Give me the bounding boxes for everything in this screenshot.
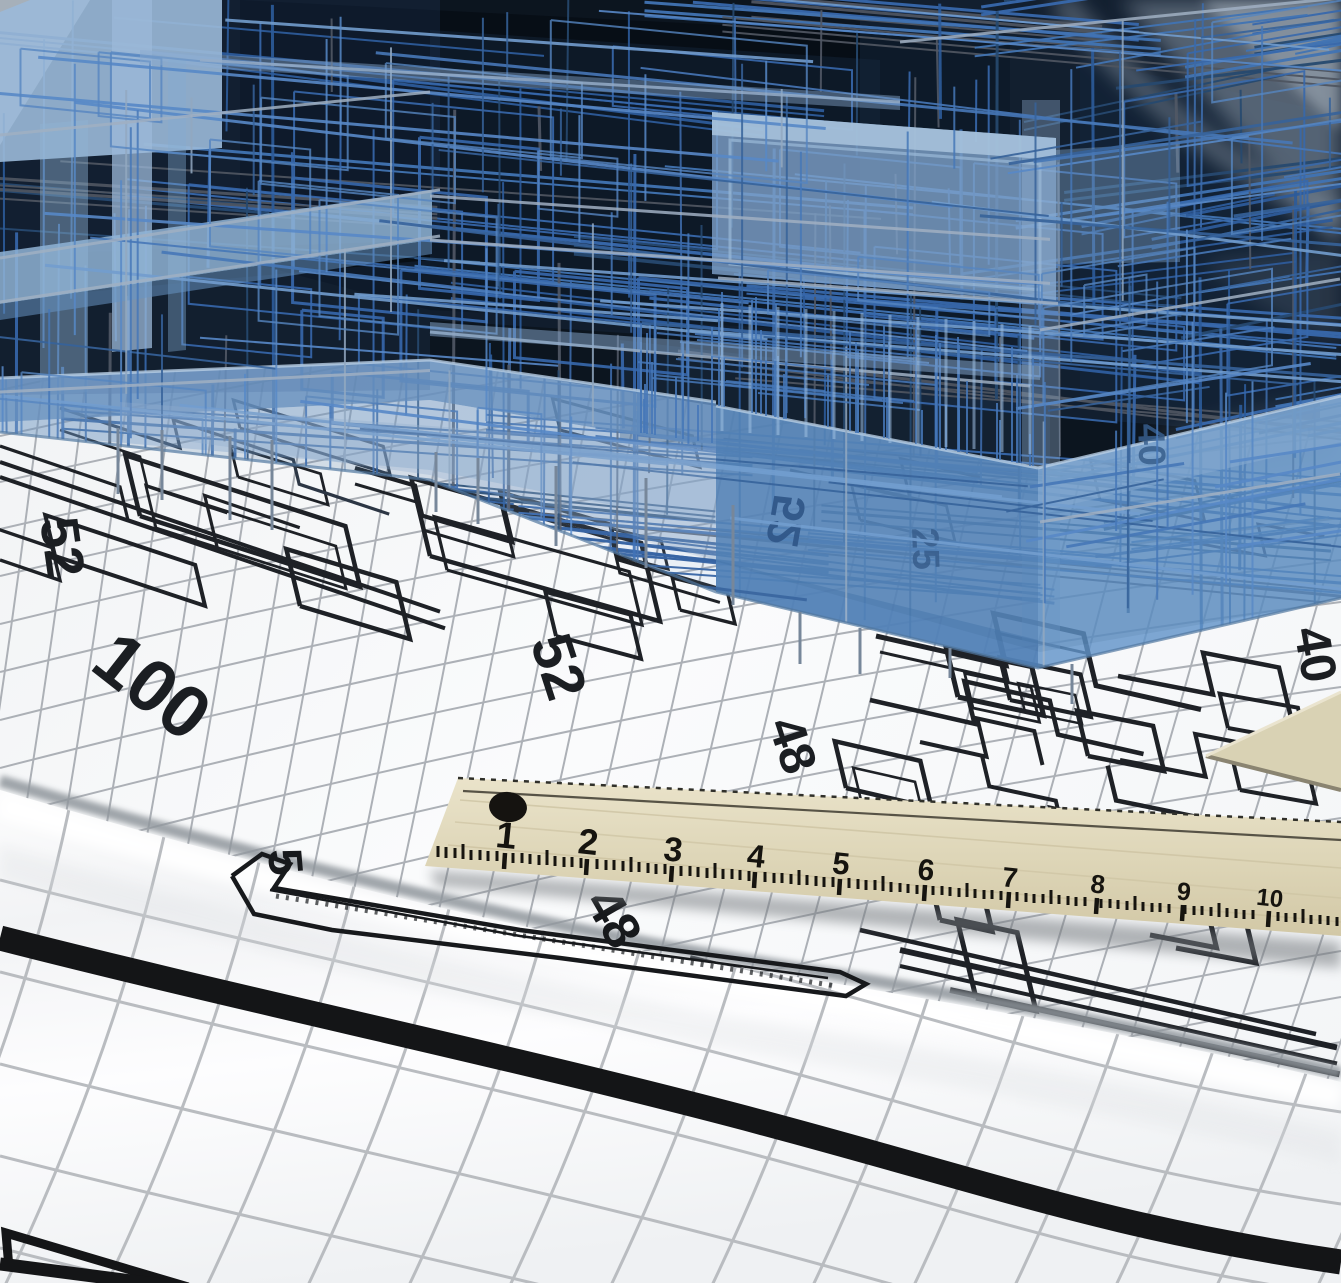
svg-text:40: 40: [1283, 622, 1341, 687]
svg-text:1: 1: [494, 814, 519, 857]
svg-text:5: 5: [831, 845, 852, 882]
svg-text:9: 9: [1175, 877, 1192, 906]
svg-text:7: 7: [1001, 861, 1020, 893]
svg-text:2: 2: [576, 820, 600, 863]
svg-text:6: 6: [916, 853, 936, 888]
svg-text:52: 52: [28, 513, 96, 581]
svg-text:3: 3: [662, 830, 685, 870]
svg-text:10: 10: [1255, 884, 1284, 914]
